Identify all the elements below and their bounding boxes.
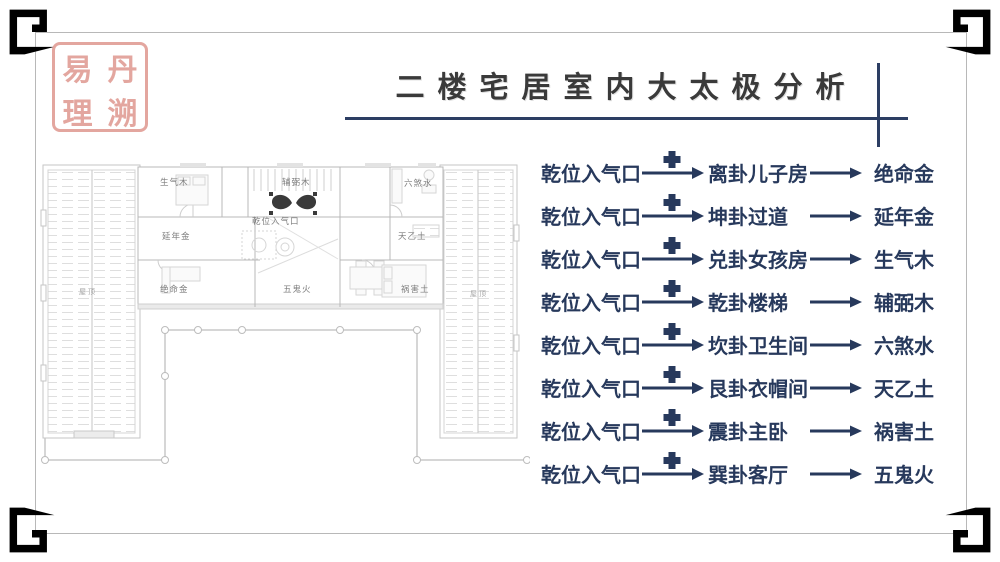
left-roof-wing	[41, 165, 140, 438]
room-label: 艮卦衣帽间	[708, 373, 810, 402]
title-block: 二楼宅居室内大太极分析	[345, 64, 908, 120]
energy-label: 五鬼火	[874, 459, 934, 488]
room-label: 兑卦女孩房	[708, 244, 810, 273]
analysis-row: 乾位入气口 离卦儿子房 绝命金	[541, 151, 951, 194]
plan-label: 延年金	[162, 231, 191, 241]
analysis-row: 乾位入气口 坎卦卫生间 六煞水	[541, 323, 951, 366]
corner-fret-icon	[4, 502, 60, 558]
arrow-icon	[810, 468, 866, 480]
arrow-icon	[810, 296, 866, 308]
inlet-label: 乾位入气口	[541, 459, 642, 488]
room-label: 坎卦卫生间	[708, 330, 810, 359]
plus-arrow-icon	[642, 373, 708, 403]
arrow-icon	[810, 253, 866, 265]
roof-label: 屋 顶	[470, 290, 486, 298]
energy-label: 天乙土	[874, 373, 934, 402]
page-title: 二楼宅居室内大太极分析	[345, 64, 908, 106]
plus-arrow-icon	[642, 201, 708, 231]
energy-label: 绝命金	[874, 158, 934, 187]
analysis-row: 乾位入气口 坤卦过道 延年金	[541, 194, 951, 237]
seal-char: 溯	[108, 89, 138, 133]
arrow-icon	[810, 425, 866, 437]
inlet-label: 乾位入气口	[541, 158, 642, 187]
room-label: 坤卦过道	[708, 201, 810, 230]
plan-label: 天乙土	[398, 231, 427, 241]
plan-label: 五鬼火	[283, 284, 312, 294]
room-label: 震卦主卧	[708, 416, 810, 445]
analysis-row: 乾位入气口 震卦主卧 祸害土	[541, 409, 951, 452]
right-roof-wing	[440, 165, 519, 438]
brand-seal: 易 丹 理 溯	[52, 42, 148, 132]
plus-arrow-icon	[642, 459, 708, 489]
inlet-label: 乾位入气口	[541, 416, 642, 445]
corner-fret-icon	[940, 4, 996, 60]
inlet-label: 乾位入气口	[541, 244, 642, 273]
inlet-label: 乾位入气口	[541, 373, 642, 402]
energy-label: 辅弼木	[874, 287, 934, 316]
room-label: 离卦儿子房	[708, 158, 810, 187]
energy-label: 延年金	[874, 201, 934, 230]
corner-fret-icon	[940, 502, 996, 558]
plan-label: 辅弼木	[282, 177, 311, 187]
analysis-row: 乾位入气口 巽卦客厅 五鬼火	[541, 452, 951, 495]
seal-char: 理	[63, 89, 93, 133]
plan-label: 祸害土	[401, 284, 430, 294]
arrow-icon	[810, 382, 866, 394]
roof-label: 屋 顶	[79, 288, 95, 296]
analysis-row: 乾位入气口 乾卦楼梯 辅弼木	[541, 280, 951, 323]
floor-plan: 生气木 辅弼木 六煞水 乾位入气口 延年金 天乙土 绝命金 五鬼火 祸害土 屋 …	[30, 155, 530, 465]
plus-arrow-icon	[642, 416, 708, 446]
arrow-icon	[810, 167, 866, 179]
analysis-list: 乾位入气口 离卦儿子房 绝命金 乾位入气口 坤卦过道 延年金 乾位入气口 兑卦女…	[541, 151, 951, 495]
inlet-label: 乾位入气口	[541, 201, 642, 230]
energy-label: 六煞水	[874, 330, 934, 359]
plus-arrow-icon	[642, 287, 708, 317]
plus-arrow-icon	[642, 158, 708, 188]
plus-arrow-icon	[642, 330, 708, 360]
arrow-icon	[810, 210, 866, 222]
energy-label: 祸害土	[874, 416, 934, 445]
title-underline	[345, 117, 908, 120]
inlet-label: 乾位入气口	[541, 330, 642, 359]
analysis-row: 乾位入气口 兑卦女孩房 生气木	[541, 237, 951, 280]
plan-label: 六煞水	[404, 178, 433, 188]
inlet-label: 乾位入气口	[541, 287, 642, 316]
plan-label: 乾位入气口	[252, 216, 300, 226]
seal-char: 丹	[108, 45, 138, 89]
energy-label: 生气木	[874, 244, 934, 273]
plus-arrow-icon	[642, 244, 708, 274]
room-label: 巽卦客厅	[708, 459, 810, 488]
plan-label: 生气木	[160, 177, 189, 187]
title-accent-line	[877, 63, 880, 147]
plan-label: 绝命金	[160, 284, 189, 294]
arrow-icon	[810, 339, 866, 351]
seal-char: 易	[63, 45, 93, 89]
room-label: 乾卦楼梯	[708, 287, 810, 316]
slide-page: 易 丹 理 溯 二楼宅居室内大太极分析	[0, 0, 1000, 562]
analysis-row: 乾位入气口 艮卦衣帽间 天乙土	[541, 366, 951, 409]
